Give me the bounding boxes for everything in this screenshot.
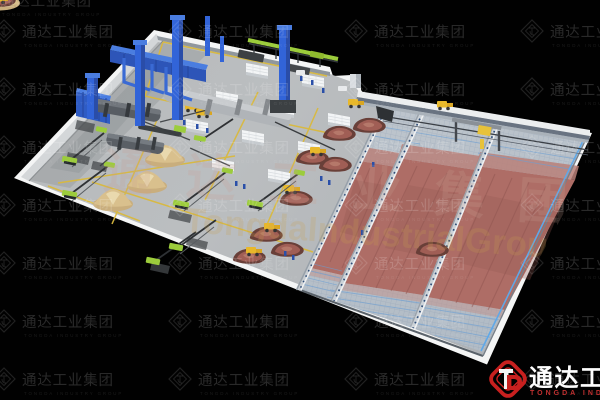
svg-text:通达工业集团: 通达工业集团 xyxy=(0,0,92,10)
svg-text:TONGDA INDUS: TONGDA INDUS xyxy=(530,390,600,397)
svg-text:通达工业: 通达工业 xyxy=(529,365,600,392)
svg-text:TONGDA INDUSTRY GROUP: TONGDA INDUSTRY GROUP xyxy=(2,12,101,17)
